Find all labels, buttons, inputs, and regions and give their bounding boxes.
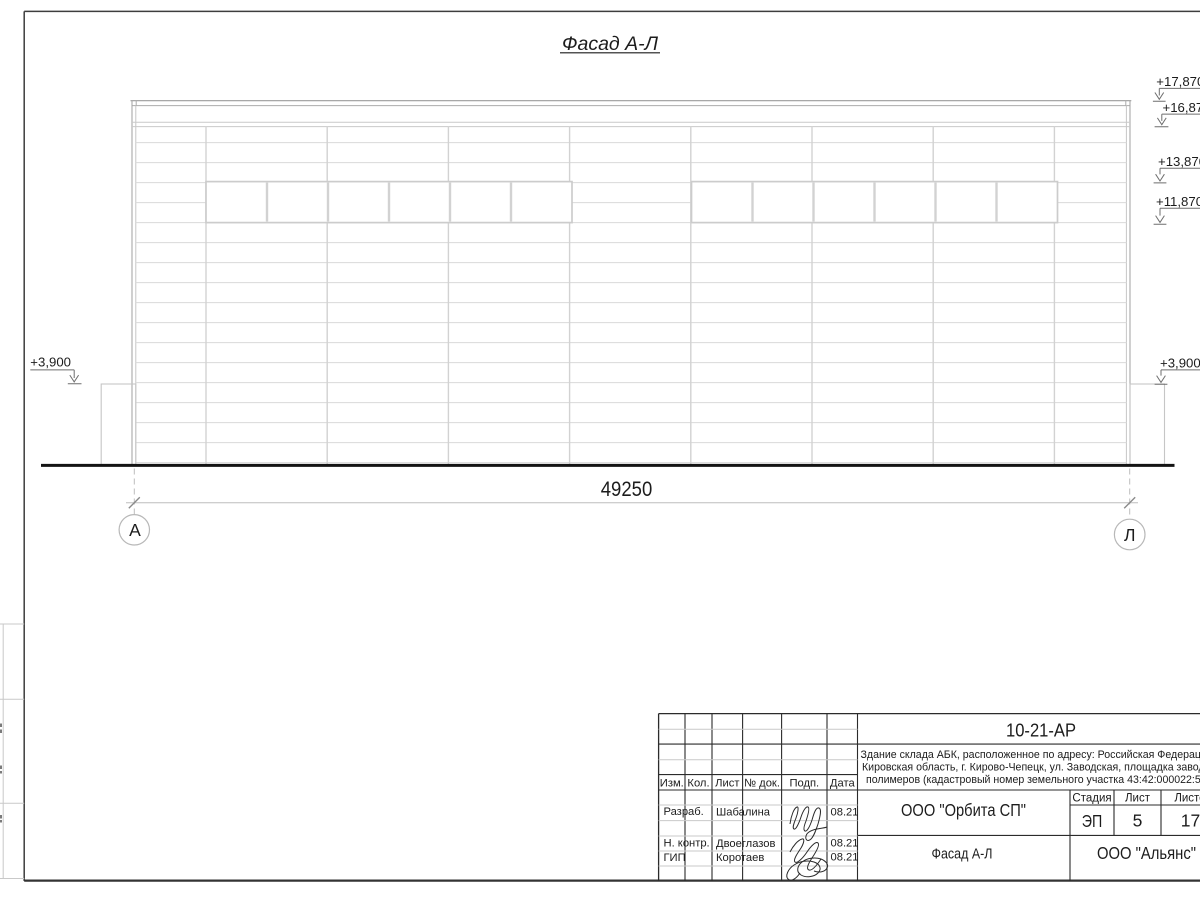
svg-text:08.21: 08.21 (831, 851, 859, 863)
svg-text:ООО "Альянс": ООО "Альянс" (1097, 843, 1196, 863)
svg-text:+13,870: +13,870 (1158, 154, 1200, 169)
svg-text:Дата: Дата (830, 777, 856, 789)
svg-text:+16,870: +16,870 (1163, 100, 1200, 115)
svg-text:Кол.: Кол. (687, 777, 709, 789)
svg-text:А: А (129, 520, 141, 540)
svg-text:Двоеглазов: Двоеглазов (716, 838, 776, 850)
svg-text:Л: Л (1124, 525, 1135, 545)
svg-text:Здание склада АБК, расположенн: Здание склада АБК, расположенное по адре… (861, 749, 1200, 761)
svg-text:+3,900: +3,900 (30, 355, 71, 370)
svg-text:49250: 49250 (601, 478, 653, 501)
svg-text:Стадия: Стадия (1072, 792, 1111, 804)
svg-text:+11,870: +11,870 (1156, 194, 1200, 209)
svg-text:Лист: Лист (1125, 792, 1151, 804)
svg-text:Листов: Листов (1174, 792, 1200, 804)
svg-text:17: 17 (1181, 811, 1200, 831)
svg-text:ООО "Орбита СП": ООО "Орбита СП" (901, 800, 1026, 820)
svg-text:08.21: 08.21 (831, 806, 859, 818)
svg-text:Шабалина: Шабалина (716, 807, 771, 819)
svg-text:Коротаев: Коротаев (716, 852, 764, 864)
svg-text:5: 5 (1133, 811, 1143, 831)
svg-text:10-21-АР: 10-21-АР (1006, 719, 1076, 740)
svg-text:Лист: Лист (715, 777, 739, 789)
svg-text:ГИП: ГИП (664, 852, 686, 864)
svg-text:Разраб.: Разраб. (664, 806, 704, 818)
svg-text:+17,870: +17,870 (1156, 74, 1200, 89)
svg-text:полимеров (кадастровый номер з: полимеров (кадастровый номер земельного … (866, 774, 1200, 786)
svg-text:Подп.: Подп. (789, 777, 819, 789)
svg-text:Изм.: Изм. (660, 777, 684, 789)
svg-text:08.21: 08.21 (831, 837, 859, 849)
svg-text:Фасад А-Л: Фасад А-Л (932, 846, 993, 863)
svg-text:ЭП: ЭП (1082, 811, 1103, 831)
svg-text:Н. контр.: Н. контр. (664, 838, 710, 850)
svg-text:Кировская область, г. Кирово-Ч: Кировская область, г. Кирово-Чепецк, ул.… (862, 762, 1200, 774)
svg-text:Фасад А-Л: Фасад А-Л (562, 33, 659, 55)
svg-text:№ док.: № док. (744, 777, 780, 789)
svg-text:+3,900: +3,900 (1160, 356, 1200, 371)
